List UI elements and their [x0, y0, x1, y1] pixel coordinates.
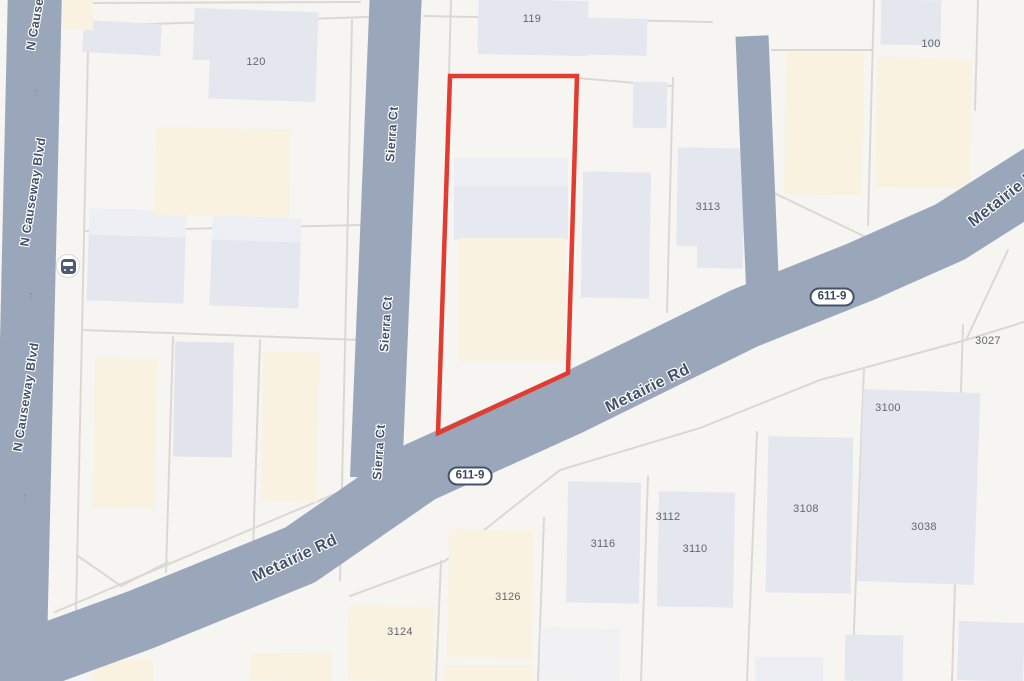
- road-sierra-ct: [376, 0, 396, 478]
- bus-glyph: [61, 259, 76, 274]
- bus-stop-icon[interactable]: [56, 254, 80, 278]
- map-canvas[interactable]: N Causeway BlvdN Causeway BlvdN Causeway…: [0, 0, 1024, 681]
- road-driveway: [752, 36, 763, 298]
- road-n-causeway-blvd: [19, 0, 35, 681]
- map-base-svg: [0, 0, 1024, 681]
